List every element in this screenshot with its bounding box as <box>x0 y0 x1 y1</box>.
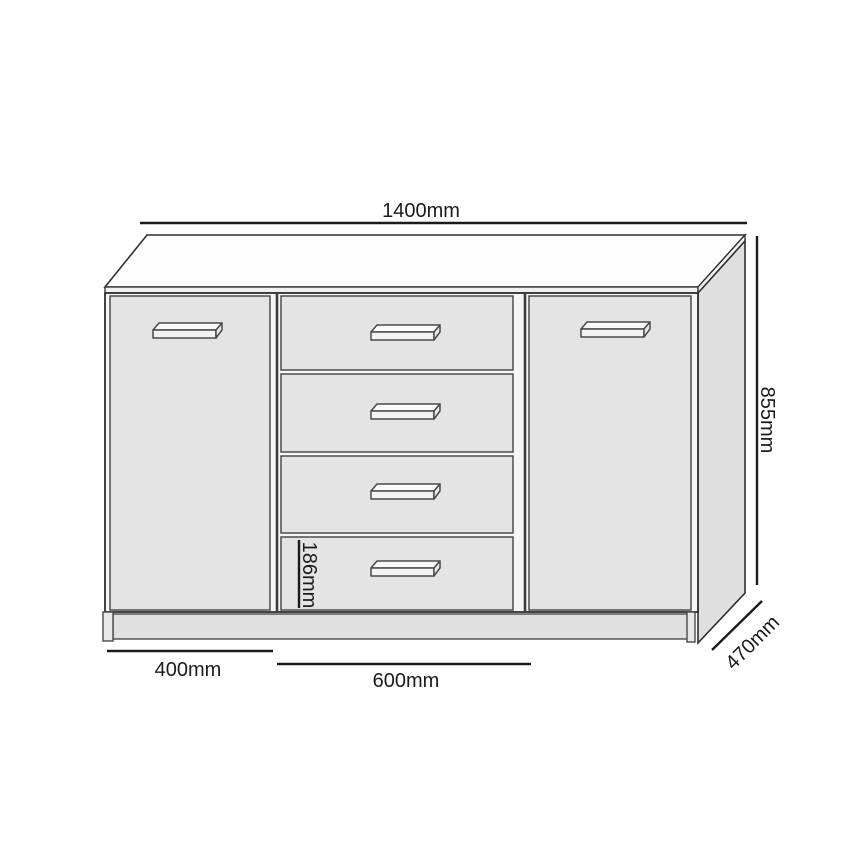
dimension-label-drawer-section-width: 600mm <box>373 670 440 692</box>
top-panel <box>105 235 745 287</box>
plinth-foot-right <box>687 612 695 642</box>
dimension-label-overall-height: 855mm <box>756 387 778 454</box>
side-panel <box>698 241 745 643</box>
right-door-handle <box>581 322 650 337</box>
sideboard-drawing: 1400mm 855mm 470mm 400mm 600mm 186mm <box>0 0 868 868</box>
left-door <box>110 296 270 610</box>
right-door <box>529 296 691 610</box>
dimension-label-depth: 470mm <box>721 611 784 674</box>
dimension-label-overall-width: 1400mm <box>382 200 460 222</box>
dimension-label-door-width: 400mm <box>155 659 222 681</box>
plinth <box>113 614 690 639</box>
dimension-label-drawer-height: 186mm <box>298 542 320 609</box>
left-door-handle <box>153 323 222 338</box>
furniture-dimension-diagram: 1400mm 855mm 470mm 400mm 600mm 186mm <box>0 0 868 868</box>
drawer-handle-4 <box>371 561 440 576</box>
drawer-handle-3 <box>371 484 440 499</box>
drawer-handle-1 <box>371 325 440 340</box>
plinth-foot-left <box>103 612 113 641</box>
drawer-handle-2 <box>371 404 440 419</box>
